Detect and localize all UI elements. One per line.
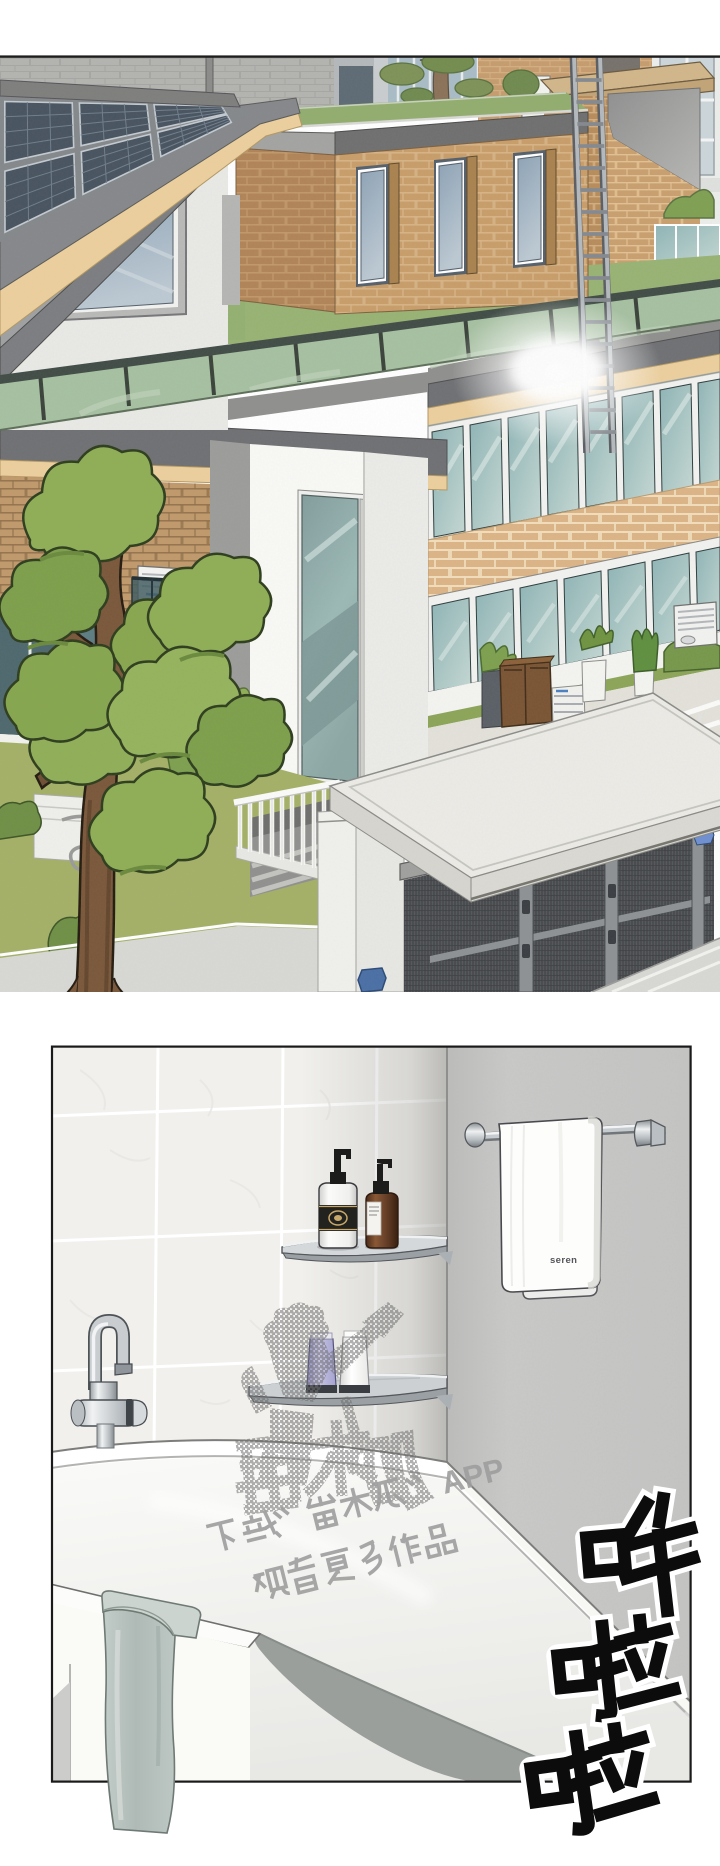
svg-text:seren: seren xyxy=(550,1255,577,1266)
